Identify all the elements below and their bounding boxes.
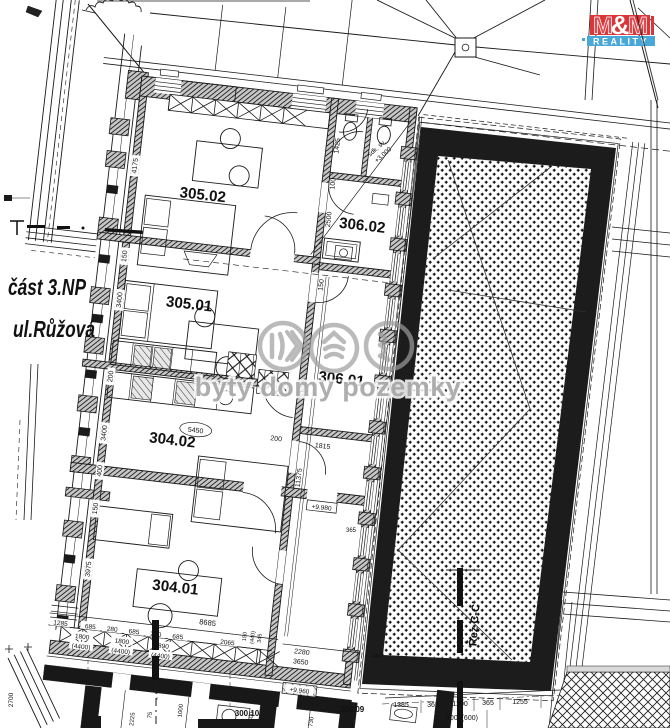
svg-text:345: 345 bbox=[257, 633, 264, 643]
svg-text:150: 150 bbox=[318, 279, 326, 292]
svg-text:685: 685 bbox=[85, 623, 97, 631]
svg-text:150: 150 bbox=[242, 632, 249, 642]
svg-text:685: 685 bbox=[172, 633, 184, 641]
svg-text:150: 150 bbox=[121, 250, 129, 263]
svg-text:&: & bbox=[611, 10, 630, 40]
svg-text:365: 365 bbox=[482, 700, 494, 707]
svg-text:480: 480 bbox=[372, 653, 383, 660]
svg-text:část 3.NP: část 3.NP bbox=[8, 274, 86, 300]
svg-text:M: M bbox=[628, 13, 648, 40]
svg-text:300.09: 300.09 bbox=[340, 705, 365, 714]
svg-text:2700: 2700 bbox=[8, 692, 15, 707]
svg-text:300.10: 300.10 bbox=[235, 709, 260, 718]
svg-text:8685: 8685 bbox=[199, 617, 217, 628]
svg-text:200: 200 bbox=[270, 435, 283, 443]
svg-text:365: 365 bbox=[427, 702, 439, 709]
svg-text:150: 150 bbox=[92, 502, 100, 515]
svg-text:685: 685 bbox=[128, 628, 140, 636]
svg-text:1255: 1255 bbox=[512, 699, 528, 706]
svg-text:ul.Růžová: ul.Růžová bbox=[13, 316, 95, 342]
svg-text:365: 365 bbox=[346, 528, 357, 534]
svg-text:100: 100 bbox=[329, 177, 337, 190]
svg-text:1200: 1200 bbox=[452, 701, 468, 708]
svg-text:280: 280 bbox=[106, 626, 118, 634]
svg-text:3000(600): 3000(600) bbox=[446, 715, 478, 722]
svg-text:400: 400 bbox=[96, 465, 104, 478]
svg-text:byty domy pozemky: byty domy pozemky bbox=[195, 372, 462, 402]
svg-text:200: 200 bbox=[107, 370, 115, 383]
svg-text:730: 730 bbox=[308, 716, 315, 727]
svg-text:1385: 1385 bbox=[393, 702, 409, 709]
svg-text:REALITY: REALITY bbox=[593, 37, 649, 47]
